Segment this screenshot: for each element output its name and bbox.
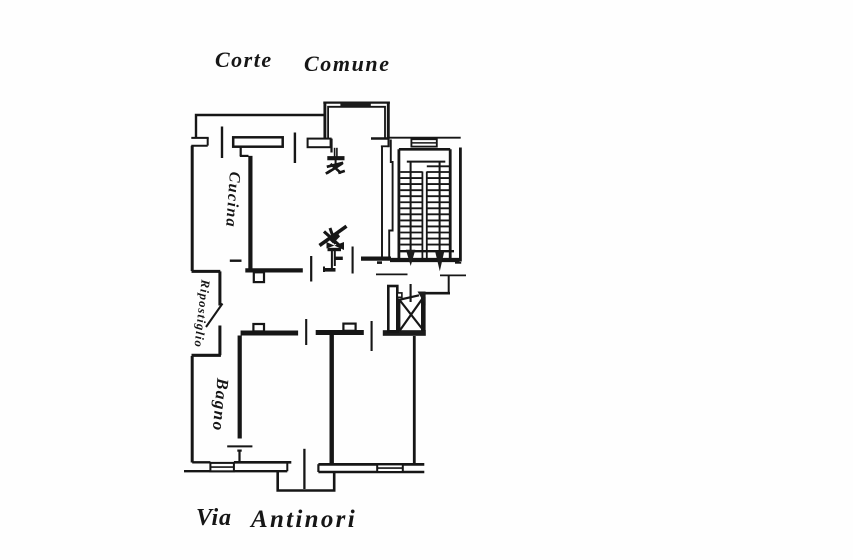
svg-text:Antinori: Antinori: [249, 506, 357, 533]
svg-text:Comune: Comune: [304, 51, 391, 76]
svg-text:Corte: Corte: [215, 47, 273, 72]
svg-text:Via: Via: [196, 505, 232, 531]
svg-text:Cucina: Cucina: [222, 171, 243, 228]
svg-text:Ripostiglio: Ripostiglio: [191, 278, 212, 349]
svg-text:Bagno: Bagno: [209, 376, 233, 432]
